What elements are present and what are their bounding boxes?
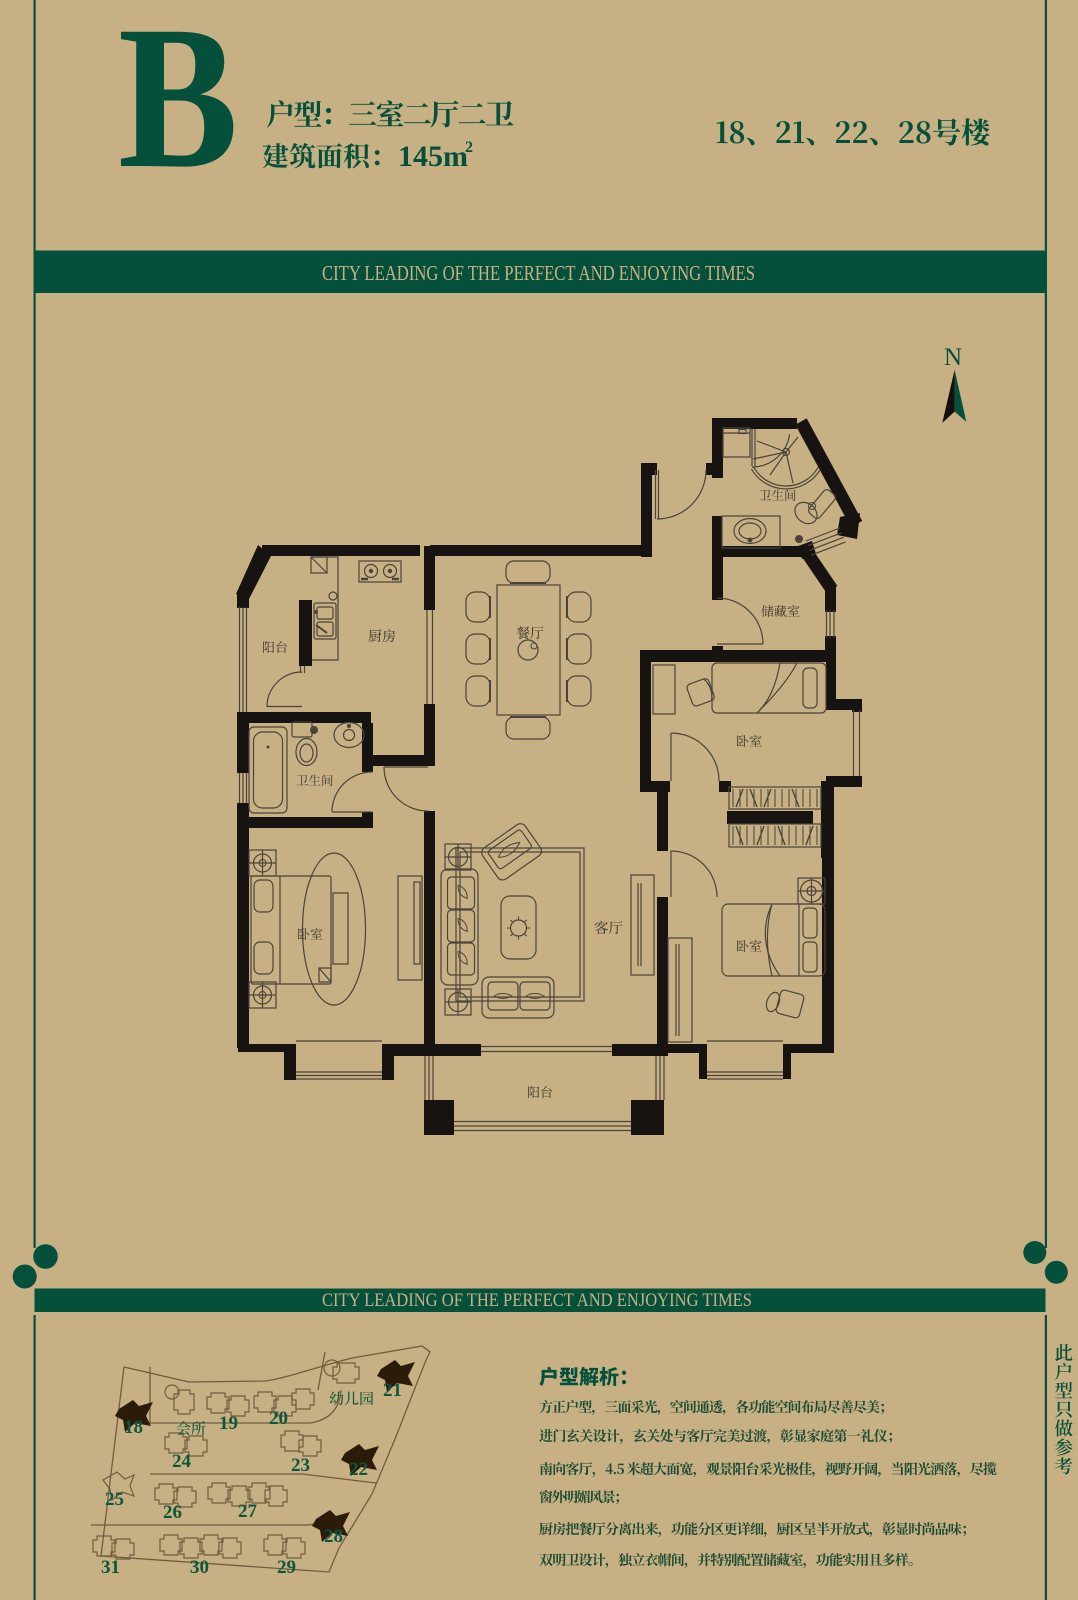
svg-text:23: 23 xyxy=(291,1455,310,1476)
svg-text:145m: 145m xyxy=(398,140,468,173)
svg-text:18: 18 xyxy=(124,1417,143,1438)
svg-text:28: 28 xyxy=(324,1526,343,1547)
svg-text:25: 25 xyxy=(105,1489,124,1510)
svg-text:19: 19 xyxy=(219,1413,238,1434)
svg-text:21: 21 xyxy=(383,1380,402,1401)
svg-text:22: 22 xyxy=(349,1459,368,1480)
svg-text:26: 26 xyxy=(163,1502,182,1523)
svg-text:CITY LEADING OF THE PERFECT AN: CITY LEADING OF THE PERFECT AND ENJOYING… xyxy=(322,1290,752,1311)
svg-text:31: 31 xyxy=(101,1557,120,1578)
svg-text:N: N xyxy=(944,344,962,371)
svg-text:2: 2 xyxy=(465,139,473,156)
svg-text:30: 30 xyxy=(190,1557,209,1578)
svg-text:20: 20 xyxy=(269,1408,288,1429)
svg-text:27: 27 xyxy=(238,1501,258,1522)
svg-text:29: 29 xyxy=(277,1557,296,1578)
svg-text:24: 24 xyxy=(172,1451,192,1472)
svg-text:B: B xyxy=(118,0,238,211)
svg-text:CITY LEADING OF THE PERFECT AN: CITY LEADING OF THE PERFECT AND ENJOYING… xyxy=(322,261,755,285)
